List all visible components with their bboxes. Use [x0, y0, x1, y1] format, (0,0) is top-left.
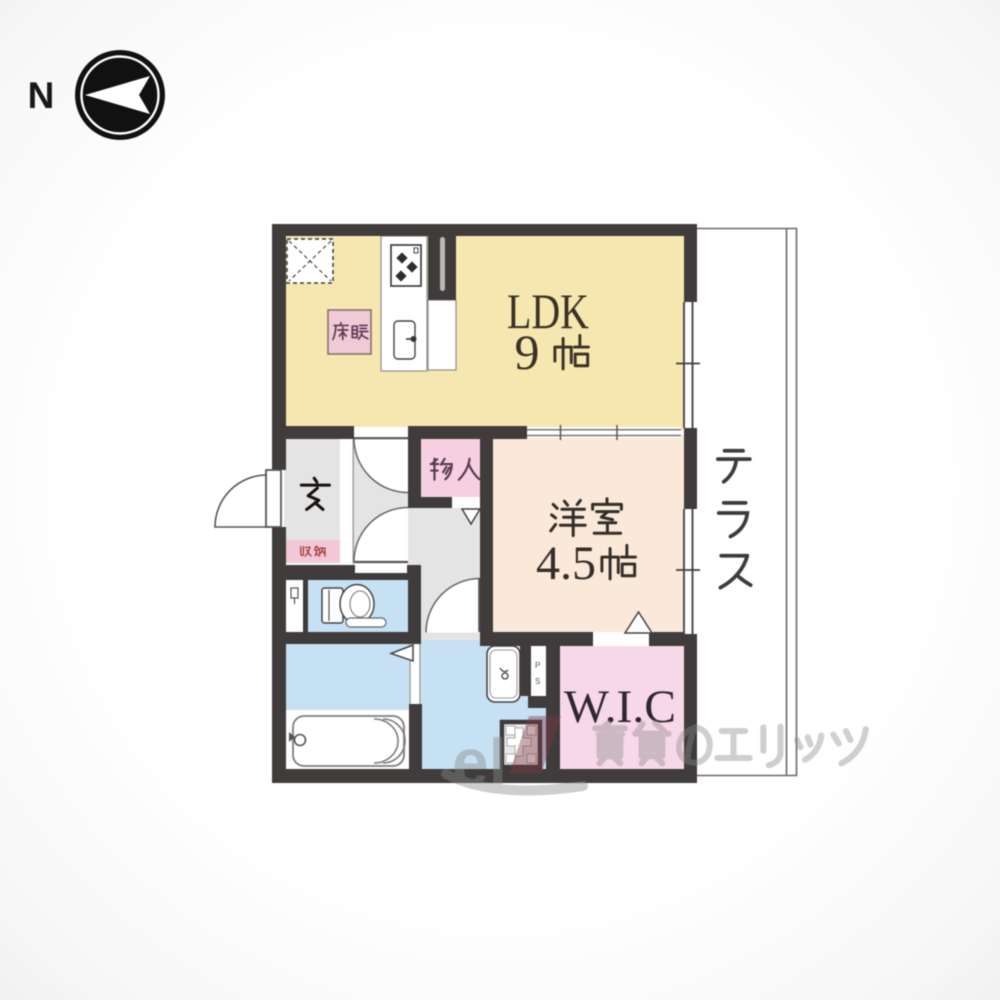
svg-text:P: P — [535, 661, 540, 670]
svg-text:S: S — [535, 677, 540, 686]
svg-text:N: N — [28, 75, 55, 116]
svg-text:4.5: 4.5 — [536, 537, 596, 590]
svg-text:9: 9 — [515, 324, 540, 380]
